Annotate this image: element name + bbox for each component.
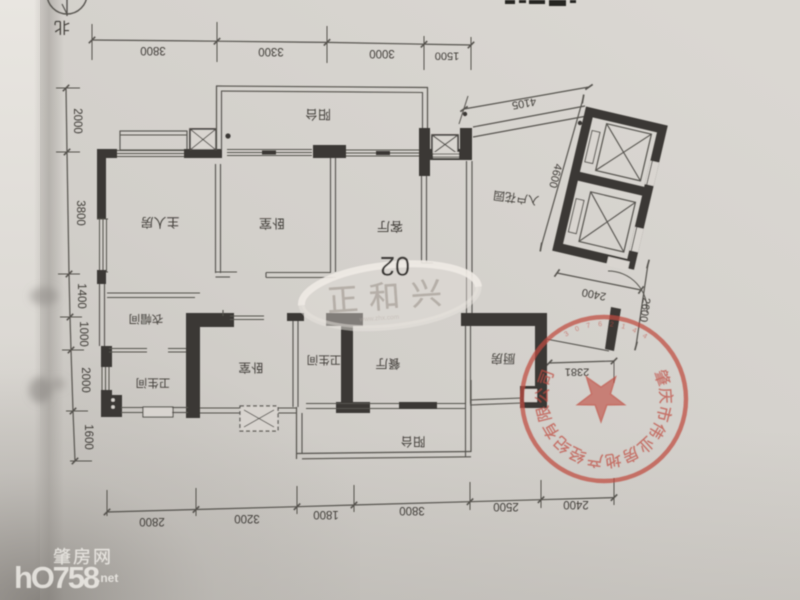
svg-text:2400: 2400 [563, 498, 589, 510]
svg-text:2381: 2381 [565, 365, 589, 377]
svg-text:2800: 2800 [139, 515, 165, 527]
svg-text:1600: 1600 [82, 424, 94, 450]
svg-text:3800: 3800 [74, 200, 86, 226]
svg-text:1500: 1500 [435, 49, 459, 61]
svg-text:2000: 2000 [79, 367, 91, 393]
svg-text:3300: 3300 [258, 45, 284, 57]
svg-text:2: 2 [609, 321, 614, 328]
svg-text:1000: 1000 [77, 321, 89, 347]
svg-text:2500: 2500 [493, 500, 519, 512]
svg-text:3200: 3200 [234, 512, 260, 524]
svg-text:3800: 3800 [399, 504, 425, 516]
svg-text:2000: 2000 [71, 108, 83, 134]
svg-text:6: 6 [598, 321, 602, 328]
svg-text:hO758: hO758 [14, 560, 100, 595]
svg-text:.net: .net [97, 571, 118, 585]
svg-text:1400: 1400 [75, 283, 87, 309]
svg-text:3800: 3800 [140, 44, 166, 56]
svg-text:02: 02 [380, 251, 410, 281]
svg-text:3000: 3000 [369, 47, 395, 59]
svg-text:1800: 1800 [313, 508, 339, 520]
